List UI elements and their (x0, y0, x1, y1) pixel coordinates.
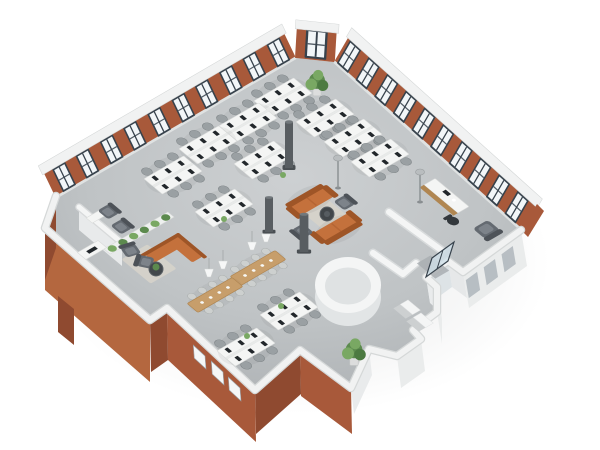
window (305, 29, 328, 60)
wall-chamfer (294, 20, 340, 63)
floor-plan-canvas (0, 0, 600, 450)
floor-plan-render (0, 0, 600, 450)
table-plant (153, 264, 160, 271)
core-cylinder-interior (325, 268, 371, 305)
coffee-table-top (324, 211, 330, 217)
